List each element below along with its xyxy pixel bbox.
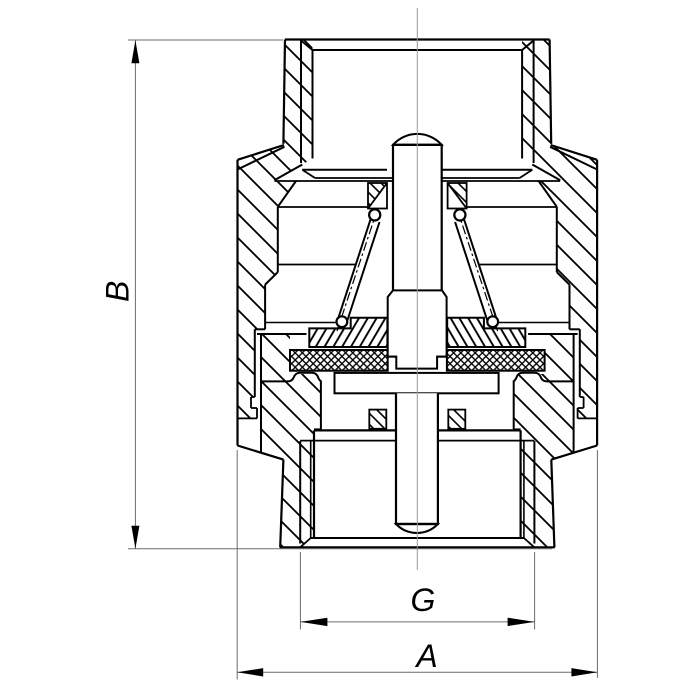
svg-text:B: B — [100, 281, 136, 302]
svg-text:G: G — [411, 582, 436, 618]
svg-text:A: A — [414, 638, 437, 674]
